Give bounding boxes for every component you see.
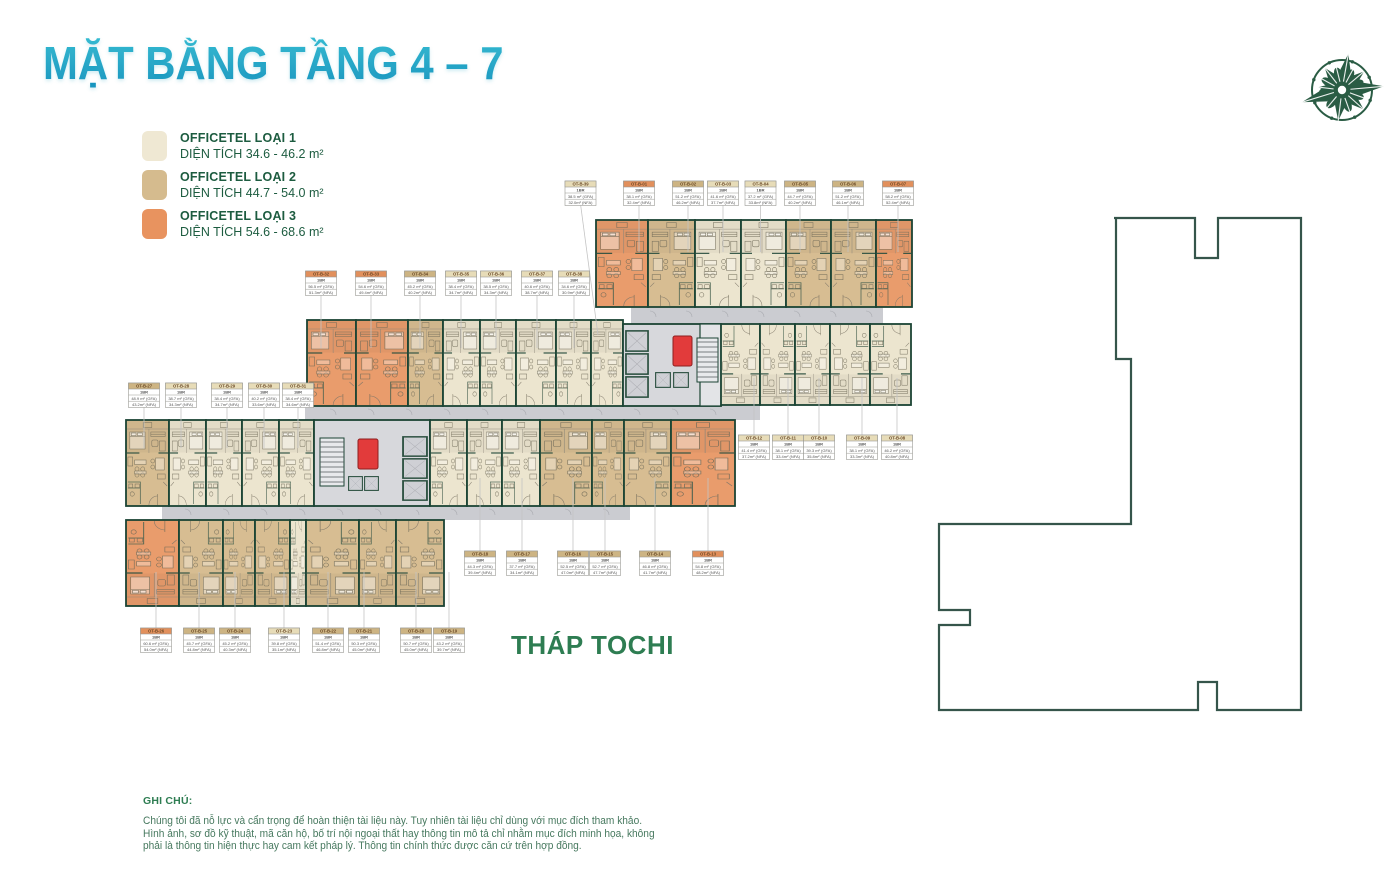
svg-text:1BR: 1BR: [756, 187, 764, 192]
svg-text:1BR: 1BR: [445, 634, 453, 639]
svg-text:30.9m² (NFA): 30.9m² (NFA): [562, 290, 587, 295]
svg-text:1BR: 1BR: [412, 634, 420, 639]
svg-text:34.1m² (NFA): 34.1m² (NFA): [510, 570, 535, 575]
svg-text:1BR: 1BR: [324, 634, 332, 639]
svg-text:50.7 m² (GFA): 50.7 m² (GFA): [403, 641, 429, 646]
svg-text:44.7 m² (GFA): 44.7 m² (GFA): [787, 194, 813, 199]
svg-text:56.5 m² (GFA): 56.5 m² (GFA): [308, 284, 334, 289]
svg-text:1BR: 1BR: [518, 557, 526, 562]
svg-text:37.7m² (NFA): 37.7m² (NFA): [711, 200, 736, 205]
svg-text:1BR: 1BR: [894, 187, 902, 192]
svg-text:1BR: 1BR: [294, 389, 302, 394]
svg-text:1BR: 1BR: [367, 277, 375, 282]
svg-text:43.2 m² (GFA): 43.2 m² (GFA): [436, 641, 462, 646]
svg-text:1BR: 1BR: [719, 187, 727, 192]
svg-text:1BR: 1BR: [140, 389, 148, 394]
svg-text:39.3 m² (GFA): 39.3 m² (GFA): [806, 448, 832, 453]
svg-text:OT-B-09: OT-B-09: [854, 436, 871, 441]
svg-text:OT-B-20: OT-B-20: [408, 629, 425, 634]
svg-text:OT-B-18: OT-B-18: [472, 552, 489, 557]
svg-text:OT-B-23: OT-B-23: [276, 629, 293, 634]
svg-text:1BR: 1BR: [569, 557, 577, 562]
svg-text:OT-B-25: OT-B-25: [191, 629, 208, 634]
svg-text:54.8 m² (GFA): 54.8 m² (GFA): [695, 564, 721, 569]
svg-text:46.1m² (NFA): 46.1m² (NFA): [836, 200, 861, 205]
svg-text:54.6 m² (GFA): 54.6 m² (GFA): [358, 284, 384, 289]
svg-text:52.5 m² (GFA): 52.5 m² (GFA): [560, 564, 586, 569]
svg-text:OT-B-29: OT-B-29: [219, 384, 236, 389]
svg-text:OT-B-04: OT-B-04: [752, 182, 769, 187]
svg-text:41.4 m² (GFA): 41.4 m² (GFA): [741, 448, 767, 453]
svg-text:OT-B-17: OT-B-17: [514, 552, 531, 557]
svg-text:OT-B-31: OT-B-31: [290, 384, 307, 389]
svg-text:34.3m² (NFA): 34.3m² (NFA): [484, 290, 509, 295]
svg-text:1BR: 1BR: [416, 277, 424, 282]
svg-text:OT-B-14: OT-B-14: [647, 552, 664, 557]
svg-text:OT-B-38: OT-B-38: [566, 272, 583, 277]
svg-text:1BR: 1BR: [231, 634, 239, 639]
svg-text:OT-B-03: OT-B-03: [715, 182, 732, 187]
svg-text:48.2m² (NFA): 48.2m² (NFA): [696, 570, 721, 575]
svg-text:OT-B-24: OT-B-24: [227, 629, 244, 634]
svg-text:40.6 m² (GFA): 40.6 m² (GFA): [524, 284, 550, 289]
svg-text:51.4 m² (GFA): 51.4 m² (GFA): [315, 641, 341, 646]
svg-text:OT-B-15: OT-B-15: [597, 552, 614, 557]
svg-text:1BR: 1BR: [684, 187, 692, 192]
svg-text:35.8m² (NFA): 35.8m² (NFA): [807, 454, 832, 459]
svg-text:37.2m² (NFA): 37.2m² (NFA): [742, 454, 767, 459]
svg-text:1BR: 1BR: [576, 187, 584, 192]
svg-text:OT-B-35: OT-B-35: [453, 272, 470, 277]
svg-text:50.3 m² (GFA): 50.3 m² (GFA): [351, 641, 377, 646]
svg-text:38.4 m² (GFA): 38.4 m² (GFA): [214, 396, 240, 401]
svg-text:1BR: 1BR: [796, 187, 804, 192]
svg-text:OT-B-10: OT-B-10: [811, 436, 828, 441]
svg-text:1BR: 1BR: [317, 277, 325, 282]
svg-text:45.0m² (NFA): 45.0m² (NFA): [404, 647, 429, 652]
svg-text:1BR: 1BR: [601, 557, 609, 562]
svg-text:1BR: 1BR: [635, 187, 643, 192]
svg-text:39.7m² (NFA): 39.7m² (NFA): [437, 647, 462, 652]
svg-text:OT-B-39: OT-B-39: [572, 182, 589, 187]
svg-text:OT-B-19: OT-B-19: [441, 629, 458, 634]
svg-text:33.3m² (NFA): 33.3m² (NFA): [850, 454, 875, 459]
svg-text:33.6m² (NFA): 33.6m² (NFA): [252, 402, 277, 407]
svg-text:40.2m² (NFA): 40.2m² (NFA): [788, 200, 813, 205]
svg-text:1BR: 1BR: [844, 187, 852, 192]
svg-text:51.3m² (NFA): 51.3m² (NFA): [309, 290, 334, 295]
svg-text:44.3 m² (GFA): 44.3 m² (GFA): [467, 564, 493, 569]
svg-text:1BR: 1BR: [152, 634, 160, 639]
svg-text:OT-B-27: OT-B-27: [136, 384, 153, 389]
svg-text:40.2m² (NFA): 40.2m² (NFA): [408, 290, 433, 295]
svg-text:1BR: 1BR: [476, 557, 484, 562]
svg-text:OT-B-16: OT-B-16: [565, 552, 582, 557]
svg-text:40.3m² (NFA): 40.3m² (NFA): [223, 647, 248, 652]
svg-text:46.8m² (NFA): 46.8m² (NFA): [316, 647, 341, 652]
svg-text:OT-B-22: OT-B-22: [320, 629, 337, 634]
svg-text:1BR: 1BR: [195, 634, 203, 639]
svg-text:39.4m² (NFA): 39.4m² (NFA): [468, 570, 493, 575]
svg-text:OT-B-36: OT-B-36: [488, 272, 505, 277]
svg-text:OT-B-08: OT-B-08: [889, 436, 906, 441]
svg-text:OT-B-34: OT-B-34: [412, 272, 429, 277]
svg-text:49.4m² (NFA): 49.4m² (NFA): [359, 290, 384, 295]
svg-text:1BR: 1BR: [784, 441, 792, 446]
svg-text:38.1 m² (GFA): 38.1 m² (GFA): [626, 194, 652, 199]
svg-text:34.3m² (NFA): 34.3m² (NFA): [169, 402, 194, 407]
svg-text:46.8 m² (GFA): 46.8 m² (GFA): [642, 564, 668, 569]
svg-text:47.0m² (NFA): 47.0m² (NFA): [561, 570, 586, 575]
svg-text:OT-B-21: OT-B-21: [356, 629, 373, 634]
svg-text:47.7m² (NFA): 47.7m² (NFA): [593, 570, 618, 575]
svg-text:1BR: 1BR: [492, 277, 500, 282]
svg-text:38.4 m² (GFA): 38.4 m² (GFA): [448, 284, 474, 289]
svg-text:1BR: 1BR: [280, 634, 288, 639]
svg-text:45.0m² (NFA): 45.0m² (NFA): [352, 647, 377, 652]
svg-text:51.2 m² (GFA): 51.2 m² (GFA): [675, 194, 701, 199]
svg-text:OT-B-32: OT-B-32: [313, 272, 330, 277]
svg-text:OT-B-28: OT-B-28: [173, 384, 190, 389]
svg-text:39.8 m² (GFA): 39.8 m² (GFA): [271, 641, 297, 646]
svg-text:45.2 m² (GFA): 45.2 m² (GFA): [222, 641, 248, 646]
svg-text:1BR: 1BR: [533, 277, 541, 282]
svg-text:1BR: 1BR: [457, 277, 465, 282]
svg-text:38.7 m² (GFA): 38.7 m² (GFA): [168, 396, 194, 401]
svg-text:OT-B-05: OT-B-05: [792, 182, 809, 187]
svg-text:1BR: 1BR: [177, 389, 185, 394]
svg-text:44.8m² (NFA): 44.8m² (NFA): [187, 647, 212, 652]
svg-text:1BR: 1BR: [260, 389, 268, 394]
svg-text:1BR: 1BR: [704, 557, 712, 562]
svg-text:60.6 m² (GFA): 60.6 m² (GFA): [143, 641, 169, 646]
svg-text:37.7 m² (GFA): 37.7 m² (GFA): [509, 564, 535, 569]
svg-text:OT-B-06: OT-B-06: [840, 182, 857, 187]
svg-text:41.6 m² (GFA): 41.6 m² (GFA): [710, 194, 736, 199]
svg-text:38.4 m² (GFA): 38.4 m² (GFA): [285, 396, 311, 401]
svg-text:1BR: 1BR: [360, 634, 368, 639]
svg-text:51.2 m² (GFA): 51.2 m² (GFA): [835, 194, 861, 199]
svg-text:40.2 m² (GFA): 40.2 m² (GFA): [251, 396, 277, 401]
svg-text:1BR: 1BR: [651, 557, 659, 562]
svg-text:35.1m² (NFA): 35.1m² (NFA): [272, 647, 297, 652]
svg-text:OT-B-02: OT-B-02: [680, 182, 697, 187]
svg-text:38.1 m² (GFA): 38.1 m² (GFA): [775, 448, 801, 453]
svg-text:OT-B-26: OT-B-26: [148, 629, 165, 634]
svg-text:38.5 m² (GFA): 38.5 m² (GFA): [568, 194, 594, 199]
svg-text:52.7 m² (GFA): 52.7 m² (GFA): [592, 564, 618, 569]
svg-text:1BR: 1BR: [815, 441, 823, 446]
svg-text:52.4m² (NFA): 52.4m² (NFA): [886, 200, 911, 205]
svg-text:1BR: 1BR: [750, 441, 758, 446]
svg-text:38.5 m² (GFA): 38.5 m² (GFA): [483, 284, 509, 289]
svg-text:46.2 m² (GFA): 46.2 m² (GFA): [884, 448, 910, 453]
svg-text:46.2m² (NFA): 46.2m² (NFA): [676, 200, 701, 205]
svg-text:45.2 m² (GFA): 45.2 m² (GFA): [407, 284, 433, 289]
svg-text:1BR: 1BR: [223, 389, 231, 394]
svg-text:1BR: 1BR: [893, 441, 901, 446]
svg-text:1BR: 1BR: [570, 277, 578, 282]
svg-text:OT-B-12: OT-B-12: [746, 436, 763, 441]
svg-text:OT-B-11: OT-B-11: [780, 436, 796, 441]
svg-text:OT-B-30: OT-B-30: [256, 384, 273, 389]
svg-text:38.7m² (NFA): 38.7m² (NFA): [525, 290, 550, 295]
svg-text:OT-B-07: OT-B-07: [890, 182, 907, 187]
svg-text:45.7 m² (GFA): 45.7 m² (GFA): [186, 641, 212, 646]
svg-text:40.8m² (NFA): 40.8m² (NFA): [885, 454, 910, 459]
svg-text:43.2m² (NFA): 43.2m² (NFA): [132, 402, 157, 407]
svg-text:58.2 m² (GFA): 58.2 m² (GFA): [885, 194, 911, 199]
svg-text:34.7m² (NFA): 34.7m² (NFA): [215, 402, 240, 407]
svg-text:33.8m² (NFA): 33.8m² (NFA): [748, 200, 773, 205]
svg-text:34.7m² (NFA): 34.7m² (NFA): [449, 290, 474, 295]
svg-text:41.7m² (NFA): 41.7m² (NFA): [643, 570, 668, 575]
svg-text:48.9 m² (GFA): 48.9 m² (GFA): [131, 396, 157, 401]
svg-text:32.4m² (NFA): 32.4m² (NFA): [627, 200, 652, 205]
svg-text:OT-B-01: OT-B-01: [631, 182, 648, 187]
svg-text:OT-B-33: OT-B-33: [363, 272, 380, 277]
svg-text:OT-B-13: OT-B-13: [700, 552, 717, 557]
svg-text:34.6m² (NFA): 34.6m² (NFA): [286, 402, 311, 407]
svg-text:37.2 m² (GFA): 37.2 m² (GFA): [748, 194, 774, 199]
svg-text:32.0m² (NFA): 32.0m² (NFA): [568, 200, 593, 205]
svg-text:OT-B-37: OT-B-37: [529, 272, 546, 277]
svg-text:1BR: 1BR: [858, 441, 866, 446]
svg-text:33.4m² (NFA): 33.4m² (NFA): [776, 454, 801, 459]
svg-text:34.6 m² (GFA): 34.6 m² (GFA): [561, 284, 587, 289]
svg-text:54.0m² (NFA): 54.0m² (NFA): [144, 647, 169, 652]
svg-text:38.1 m² (GFA): 38.1 m² (GFA): [849, 448, 875, 453]
